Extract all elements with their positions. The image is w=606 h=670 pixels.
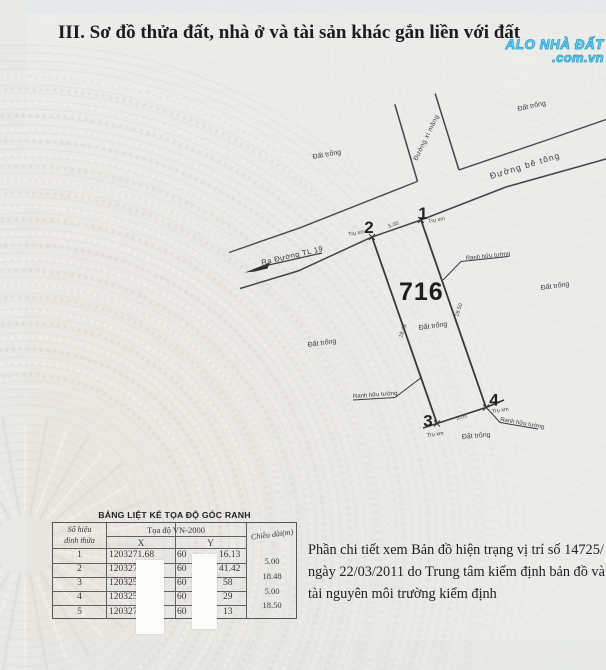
- svg-text:Đất trống: Đất trống: [312, 147, 342, 161]
- svg-text:716: 716: [399, 278, 444, 306]
- svg-text:Trụ xm: Trụ xm: [491, 407, 509, 415]
- svg-text:Trụ xm: Trụ xm: [426, 431, 444, 439]
- svg-text:5.03: 5.03: [456, 413, 468, 422]
- svg-text:Đường bê tông: Đường bê tông: [489, 150, 562, 181]
- svg-text:Đất trống: Đất trống: [418, 319, 448, 332]
- svg-text:2: 2: [364, 218, 373, 237]
- svg-text:Đất trống: Đất trống: [517, 98, 547, 113]
- svg-text:Trụ xm: Trụ xm: [428, 216, 446, 225]
- svg-text:4: 4: [489, 391, 499, 410]
- svg-text:Đất trống: Đất trống: [307, 336, 337, 349]
- svg-text:Đất trống: Đất trống: [540, 279, 570, 292]
- svg-text:Đất trống: Đất trống: [461, 430, 491, 441]
- svg-text:3: 3: [423, 412, 432, 431]
- svg-text:18.50: 18.50: [454, 303, 464, 318]
- svg-text:1: 1: [418, 204, 427, 223]
- svg-text:Đường xi măng: Đường xi măng: [413, 114, 441, 162]
- svg-text:Trụ xm: Trụ xm: [348, 229, 366, 238]
